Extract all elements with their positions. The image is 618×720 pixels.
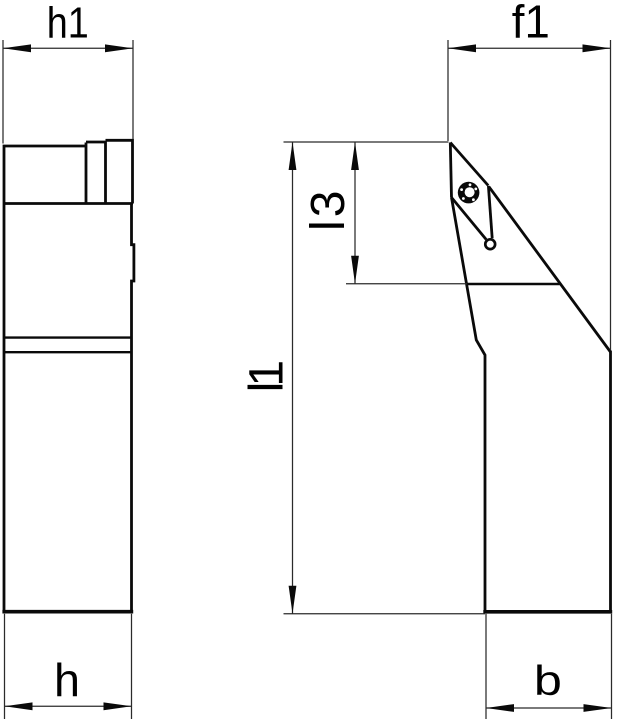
svg-text:h: h	[54, 654, 80, 706]
svg-text:h1: h1	[47, 0, 89, 48]
svg-text:l1: l1	[241, 360, 294, 392]
svg-text:l3: l3	[302, 191, 355, 231]
svg-text:b: b	[534, 657, 562, 704]
svg-text:f1: f1	[512, 0, 550, 48]
